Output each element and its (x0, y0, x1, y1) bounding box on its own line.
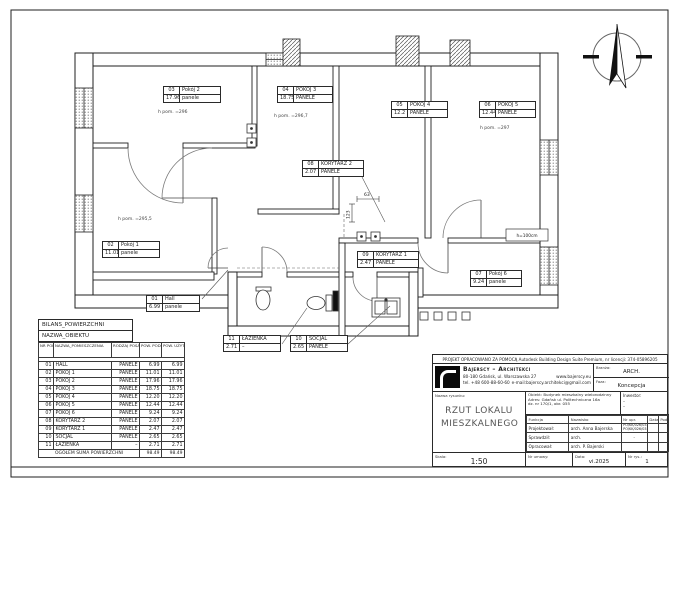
room-label-korytarz1: 09KORYTARZ 1 2.47PANELE (357, 251, 419, 268)
table-cell: 2.65 (140, 434, 162, 442)
table-row: 08KORYTARZ 2PANELE2.072.07 (39, 418, 185, 426)
height-note: h pom. =295,5 (118, 217, 152, 222)
wall-note-text: h=100cm (516, 233, 537, 239)
faza-label: Faza: (596, 379, 606, 384)
table-cell: 12.44 (140, 402, 162, 410)
title-block: PROJEKT OPRACOWANO ZA POMOCĄ Autodesk Bu… (432, 354, 668, 467)
dim-63: 63 (364, 192, 370, 198)
bathroom-fixtures (256, 287, 338, 311)
table-cell: 07 (39, 410, 54, 418)
table-cell: PANELE (112, 410, 140, 418)
header-row: NR POM.NAZWA_POMIESZCZENIARODZAJ POSADZK… (39, 343, 185, 358)
rys-cell: Nr rys.: 1 (626, 453, 668, 467)
table-cell: 2.47 (140, 426, 162, 434)
object-cell: Obiekt: Budynek mieszkalny wielorodzinny… (526, 392, 621, 414)
branza-label: Branża: (596, 365, 611, 370)
table-row: Sprawdził:arch.– (527, 433, 669, 442)
electrical-symbols (247, 124, 470, 320)
inwestor-value: – (623, 399, 625, 404)
table-cell: PANELE (112, 378, 140, 386)
room-label-pokoj3: 04POKÓJ 3 18.75PANELE (277, 86, 333, 103)
table-cell: SOCJAL (54, 434, 112, 442)
table-cell: Projektował: (527, 424, 569, 433)
total-label: OGÓŁEM SUMA POWIERZCHNI (39, 450, 140, 458)
total-value: 98.49 (140, 450, 162, 458)
table-cell: – (112, 442, 140, 450)
table-cell (647, 442, 658, 451)
boiler (333, 291, 338, 311)
table-cell: 2.07 (140, 418, 162, 426)
table-cell: PANELE (112, 434, 140, 442)
skala-value: 1:50 (433, 453, 525, 467)
table-cell: 2.71 (162, 442, 185, 450)
rys-label: Nr rys.: (628, 454, 642, 459)
table-cell: PANELE (112, 426, 140, 434)
table-row: 05POKÓJ 4PANELE12.2012.20 (39, 394, 185, 402)
total-value: 98.49 (162, 450, 185, 458)
column-header: Nr upr. (621, 416, 647, 424)
floor-plan-canvas: 63 123 h=100cm (0, 0, 677, 600)
toilet (307, 297, 325, 310)
hidden-lines (237, 214, 344, 268)
table-cell: POKÓJ 4 (54, 394, 112, 402)
room-label-korytarz2: 08KORYTARZ 2 2.07PANELE (302, 160, 364, 177)
header-row: FunkcjaNazwiskoNr upr.DataPodpis (527, 416, 669, 424)
area-balance-table: BILANS_POWIERZCHNI NAZWA_OBIEKTU NR POM.… (38, 319, 185, 458)
table-cell: PANELE (112, 394, 140, 402)
table-cell: 11.01 (162, 370, 185, 378)
table-cell (658, 442, 668, 451)
table-cell: 02 (39, 370, 54, 378)
table-cell: 12.20 (140, 394, 162, 402)
room-label-socjal: 10SOCJAL 2.65PANELE (290, 335, 348, 352)
column-header: Funkcja (527, 416, 569, 424)
room-label-lazienka: 11ŁAZIENKA 2.71– (223, 335, 281, 352)
room-label-pokoj4: 05POKÓJ 4 12.2PANELE (391, 101, 448, 118)
skala-cell: Skala: 1:50 (433, 453, 526, 467)
table-cell (621, 442, 647, 451)
table-cell: KORYTARZ 1 (54, 426, 112, 434)
table-cell: – (621, 433, 647, 442)
branza-cell: Branża: ARCH. (594, 364, 669, 378)
table-cell (647, 433, 658, 442)
table-cell: POKÓJ 6 (54, 410, 112, 418)
firm-email: e-mail:bajerscy.architekci@gmail.com (512, 380, 591, 386)
data-cell: Data: vi.2025 (573, 453, 626, 467)
table-row: 01HALLPANELE6.996.99 (39, 362, 185, 370)
table-row: 03POKÓJ 2PANELE17.9617.96 (39, 378, 185, 386)
drawing-name-cell: Nazwa rysunku: RZUT LOKALU MIESZKALNEGO (433, 392, 526, 452)
table-cell: Sprawdził: (527, 433, 569, 442)
room-label-pokoj2: 03Pokój 2 17.96panele (163, 86, 221, 103)
height-note: h pom. =297 (480, 126, 510, 131)
column-header: POW. PODŁOGI (140, 343, 162, 358)
firm-name: Bajerscy – Architekci (463, 366, 591, 374)
drawing-name-label: Nazwa rysunku: (435, 393, 465, 398)
table-cell: PANELE (112, 402, 140, 410)
table-row: 10SOCJALPANELE2.652.65 (39, 434, 185, 442)
room-label-pokoj6: 07Pokój 6 9.24panele (470, 270, 522, 287)
room-label-pokoj5: 06POKÓJ 5 12.44PANELE (479, 101, 536, 118)
firm-phone: tel. +48 600-88-60-60 (463, 380, 510, 386)
table-row: 06POKÓJ 5PANELE12.4412.44 (39, 402, 185, 410)
wall-note: h=100cm (506, 229, 548, 241)
table-cell: PANELE (112, 370, 140, 378)
table-row: Projektował:arch. Anna BajerskaPO/KK/026… (527, 424, 669, 433)
table-cell: arch. (569, 433, 621, 442)
table-cell: POKÓJ 1 (54, 370, 112, 378)
umowa-cell: Nr umowy: (526, 453, 573, 467)
height-note: h pom. =296,7 (274, 114, 308, 119)
table-cell: 12.44 (162, 402, 185, 410)
table-cell: PANELE (112, 362, 140, 370)
table-cell (658, 433, 668, 442)
drawing-sheet: { "colors": {"line": "#1f1f1f", "paper":… (0, 0, 677, 600)
table-cell: PO/KK/026/03 PO/KK/026/03 (621, 424, 647, 433)
height-note: h pom. =296 (158, 110, 188, 115)
table-cell: 09 (39, 426, 54, 434)
table-cell: 03 (39, 378, 54, 386)
kitchen-sink (372, 298, 400, 317)
column-header: Nazwisko (569, 416, 621, 424)
table-row: Opracował:arch. P. Bajerski (527, 442, 669, 451)
table-cell: 01 (39, 362, 54, 370)
table-cell: 2.07 (162, 418, 185, 426)
table-cell: 6.99 (162, 362, 185, 370)
table-cell: 17.96 (140, 378, 162, 386)
table-cell: POKÓJ 2 (54, 378, 112, 386)
table-cell: 18.75 (162, 386, 185, 394)
table-cell: Opracował: (527, 442, 569, 451)
table-cell: 6.99 (140, 362, 162, 370)
table-cell: 9.24 (162, 410, 185, 418)
table-cell: 18.75 (140, 386, 162, 394)
table-cell: HALL (54, 362, 112, 370)
washbasin (256, 290, 270, 310)
table-cell: 11.01 (140, 370, 162, 378)
firm-logo (435, 366, 460, 388)
column-header: RODZAJ POSADZKI (112, 343, 140, 358)
skala-label: Skala: (435, 454, 447, 459)
table-row: 07POKÓJ 6PANELE9.249.24 (39, 410, 185, 418)
table-cell: 2.65 (162, 434, 185, 442)
column-header: POW. UŻYTKOWA (162, 343, 185, 358)
room-label-pokoj1: 02Pokój 1 11.01panele (102, 241, 160, 258)
table-cell: arch. Anna Bajerska (569, 424, 621, 433)
faza-cell: Faza: Koncepcja (594, 378, 669, 392)
table-cell: POKÓJ 5 (54, 402, 112, 410)
inwestor-value: – (623, 404, 625, 409)
table-cell: 11 (39, 442, 54, 450)
license-line: PROJEKT OPRACOWANO ZA POMOCĄ Autodesk Bu… (433, 355, 667, 364)
inwestor-label: Inwestor: (623, 393, 641, 398)
room-label-hall: 01Hall 6.99panele (146, 295, 200, 312)
dimensions: 63 123 (346, 192, 380, 222)
table-cell (647, 424, 658, 433)
table-cell: PANELE (112, 386, 140, 394)
table-cell: 9.24 (140, 410, 162, 418)
personnel-table: FunkcjaNazwiskoNr upr.DataPodpis Projekt… (526, 415, 669, 452)
table-cell: 05 (39, 394, 54, 402)
column-header: NAZWA_POMIESZCZENIA (54, 343, 112, 358)
table-cell: KORYTARZ 2 (54, 418, 112, 426)
table-cell: 06 (39, 402, 54, 410)
table-row: 04POKÓJ 3PANELE18.7518.75 (39, 386, 185, 394)
north-arrow-icon (583, 24, 652, 88)
table-row: 02POKÓJ 1PANELE11.0111.01 (39, 370, 185, 378)
table-cell (658, 424, 668, 433)
dim-123: 123 (346, 210, 352, 219)
total-row: OGÓŁEM SUMA POWIERZCHNI 98.49 98.49 (39, 450, 185, 458)
table-cell: 12.20 (162, 394, 185, 402)
table-cell: 08 (39, 418, 54, 426)
table-cell: 10 (39, 434, 54, 442)
table-subtitle: NAZWA_OBIEKTU (38, 331, 133, 342)
table-cell: 04 (39, 386, 54, 394)
column-header: Data (647, 416, 658, 424)
table-cell: 2.71 (140, 442, 162, 450)
investor-cell: Inwestor: – – (621, 392, 669, 414)
umowa-label: Nr umowy: (528, 454, 548, 459)
table-cell: POKÓJ 3 (54, 386, 112, 394)
table-cell: 2.47 (162, 426, 185, 434)
table-title: BILANS_POWIERZCHNI (38, 319, 133, 331)
column-header: Podpis (658, 416, 668, 424)
drawing-title: RZUT LOKALU MIESZKALNEGO (433, 405, 525, 431)
table-cell: PANELE (112, 418, 140, 426)
table-row: 09KORYTARZ 1PANELE2.472.47 (39, 426, 185, 434)
data-label: Data: (575, 454, 585, 459)
adres-value2: dz. nr 170/1, obr. 055 (528, 401, 570, 406)
column-header: NR POM. (39, 343, 54, 358)
table-row: 11ŁAZIENKA–2.712.71 (39, 442, 185, 450)
table-cell: 17.96 (162, 378, 185, 386)
table-cell: ŁAZIENKA (54, 442, 112, 450)
table-cell: arch. P. Bajerski (569, 442, 621, 451)
firm-info: Bajerscy – Architekci 80-180 Gdańsk, ul.… (433, 364, 594, 391)
